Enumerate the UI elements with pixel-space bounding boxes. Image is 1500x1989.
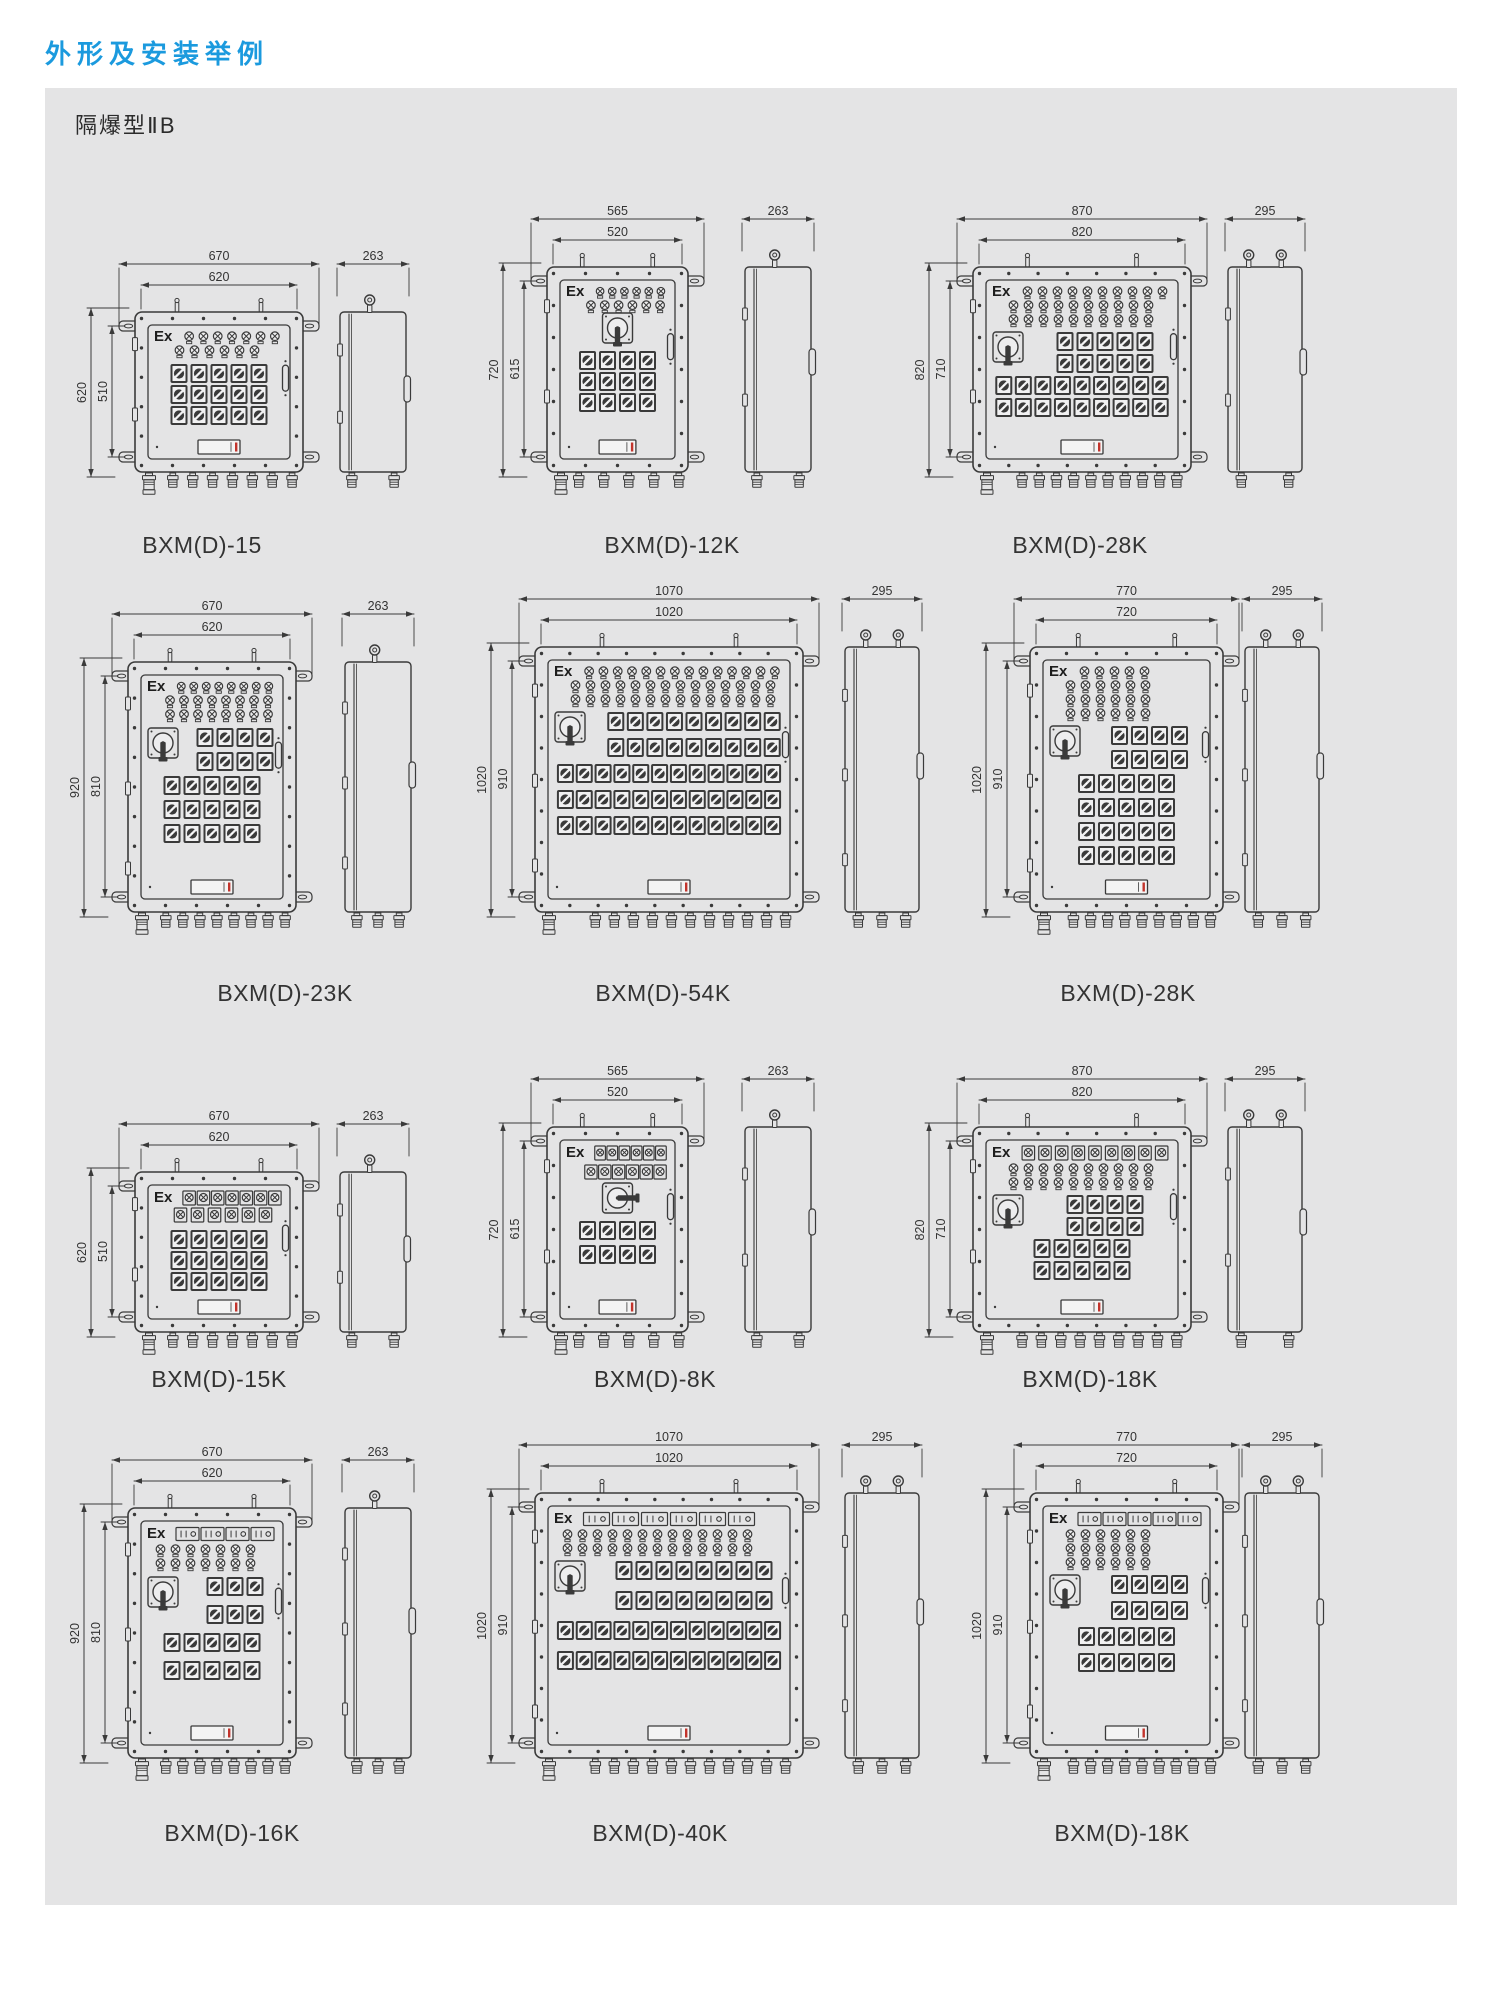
svg-text:920: 920	[68, 1623, 82, 1644]
svg-text:910: 910	[496, 769, 510, 790]
svg-text:820: 820	[913, 1220, 927, 1241]
svg-text:263: 263	[363, 1109, 384, 1123]
svg-text:670: 670	[202, 1445, 223, 1459]
model-label: BXM(D)-28K	[1012, 532, 1147, 559]
svg-text:1020: 1020	[970, 766, 984, 794]
svg-text:770: 770	[1116, 584, 1137, 598]
svg-text:820: 820	[913, 360, 927, 381]
model-label: BXM(D)-15K	[151, 1366, 286, 1393]
svg-text:615: 615	[508, 1219, 522, 1240]
svg-text:620: 620	[202, 1466, 223, 1480]
svg-text:Ex: Ex	[554, 1510, 573, 1527]
model-label: BXM(D)-23K	[217, 980, 352, 1007]
svg-text:1020: 1020	[970, 1612, 984, 1640]
svg-text:720: 720	[1116, 605, 1137, 619]
svg-text:670: 670	[202, 599, 223, 613]
svg-text:263: 263	[768, 1064, 789, 1078]
model-label: BXM(D)-15	[142, 532, 262, 559]
svg-text:Ex: Ex	[1049, 663, 1068, 680]
svg-text:295: 295	[872, 584, 893, 598]
svg-text:295: 295	[1255, 204, 1276, 218]
svg-text:Ex: Ex	[154, 1189, 173, 1206]
svg-text:520: 520	[607, 1085, 628, 1099]
svg-text:620: 620	[209, 1130, 230, 1144]
svg-text:295: 295	[872, 1430, 893, 1444]
svg-text:770: 770	[1116, 1430, 1137, 1444]
svg-text:1020: 1020	[655, 605, 683, 619]
svg-text:1070: 1070	[655, 1430, 683, 1444]
svg-text:910: 910	[496, 1615, 510, 1636]
svg-text:Ex: Ex	[147, 678, 166, 695]
svg-text:615: 615	[508, 359, 522, 380]
svg-text:263: 263	[363, 249, 384, 263]
model-label: BXM(D)-18K	[1054, 1820, 1189, 1847]
svg-text:263: 263	[368, 599, 389, 613]
svg-text:1020: 1020	[475, 1612, 489, 1640]
svg-text:720: 720	[487, 360, 501, 381]
svg-text:510: 510	[96, 1241, 110, 1262]
svg-text:810: 810	[89, 1622, 103, 1643]
svg-text:Ex: Ex	[992, 1144, 1011, 1161]
svg-text:295: 295	[1272, 1430, 1293, 1444]
svg-text:Ex: Ex	[554, 663, 573, 680]
svg-text:670: 670	[209, 249, 230, 263]
svg-text:Ex: Ex	[566, 283, 585, 300]
svg-text:510: 510	[96, 381, 110, 402]
svg-text:Ex: Ex	[1049, 1510, 1068, 1527]
model-label: BXM(D)-28K	[1060, 980, 1195, 1007]
svg-text:295: 295	[1255, 1064, 1276, 1078]
svg-text:1020: 1020	[655, 1451, 683, 1465]
model-label: BXM(D)-40K	[592, 1820, 727, 1847]
model-label: BXM(D)-18K	[1022, 1366, 1157, 1393]
svg-text:820: 820	[1072, 1085, 1093, 1099]
model-label: BXM(D)-8K	[594, 1366, 716, 1393]
svg-text:810: 810	[89, 776, 103, 797]
svg-text:710: 710	[934, 359, 948, 380]
svg-text:920: 920	[68, 777, 82, 798]
svg-text:565: 565	[607, 204, 628, 218]
model-label: BXM(D)-54K	[595, 980, 730, 1007]
svg-text:263: 263	[368, 1445, 389, 1459]
svg-text:720: 720	[487, 1220, 501, 1241]
svg-text:820: 820	[1072, 225, 1093, 239]
svg-text:910: 910	[991, 1615, 1005, 1636]
svg-text:1070: 1070	[655, 584, 683, 598]
svg-text:520: 520	[607, 225, 628, 239]
svg-text:870: 870	[1072, 204, 1093, 218]
svg-text:910: 910	[991, 769, 1005, 790]
model-label: BXM(D)-16K	[164, 1820, 299, 1847]
svg-text:1020: 1020	[475, 766, 489, 794]
svg-text:Ex: Ex	[154, 328, 173, 345]
svg-text:620: 620	[202, 620, 223, 634]
svg-text:565: 565	[607, 1064, 628, 1078]
svg-text:870: 870	[1072, 1064, 1093, 1078]
svg-text:Ex: Ex	[147, 1525, 166, 1542]
svg-text:295: 295	[1272, 584, 1293, 598]
svg-text:Ex: Ex	[992, 283, 1011, 300]
svg-text:720: 720	[1116, 1451, 1137, 1465]
svg-text:620: 620	[75, 382, 89, 403]
svg-text:670: 670	[209, 1109, 230, 1123]
svg-text:710: 710	[934, 1219, 948, 1240]
svg-text:263: 263	[768, 204, 789, 218]
svg-text:Ex: Ex	[566, 1144, 585, 1161]
model-label: BXM(D)-12K	[604, 532, 739, 559]
svg-text:620: 620	[75, 1242, 89, 1263]
catalog-page: 外形及安装举例 隔爆型ⅡB Ex670620620510263Ex5655207…	[0, 0, 1500, 1989]
svg-text:620: 620	[209, 270, 230, 284]
